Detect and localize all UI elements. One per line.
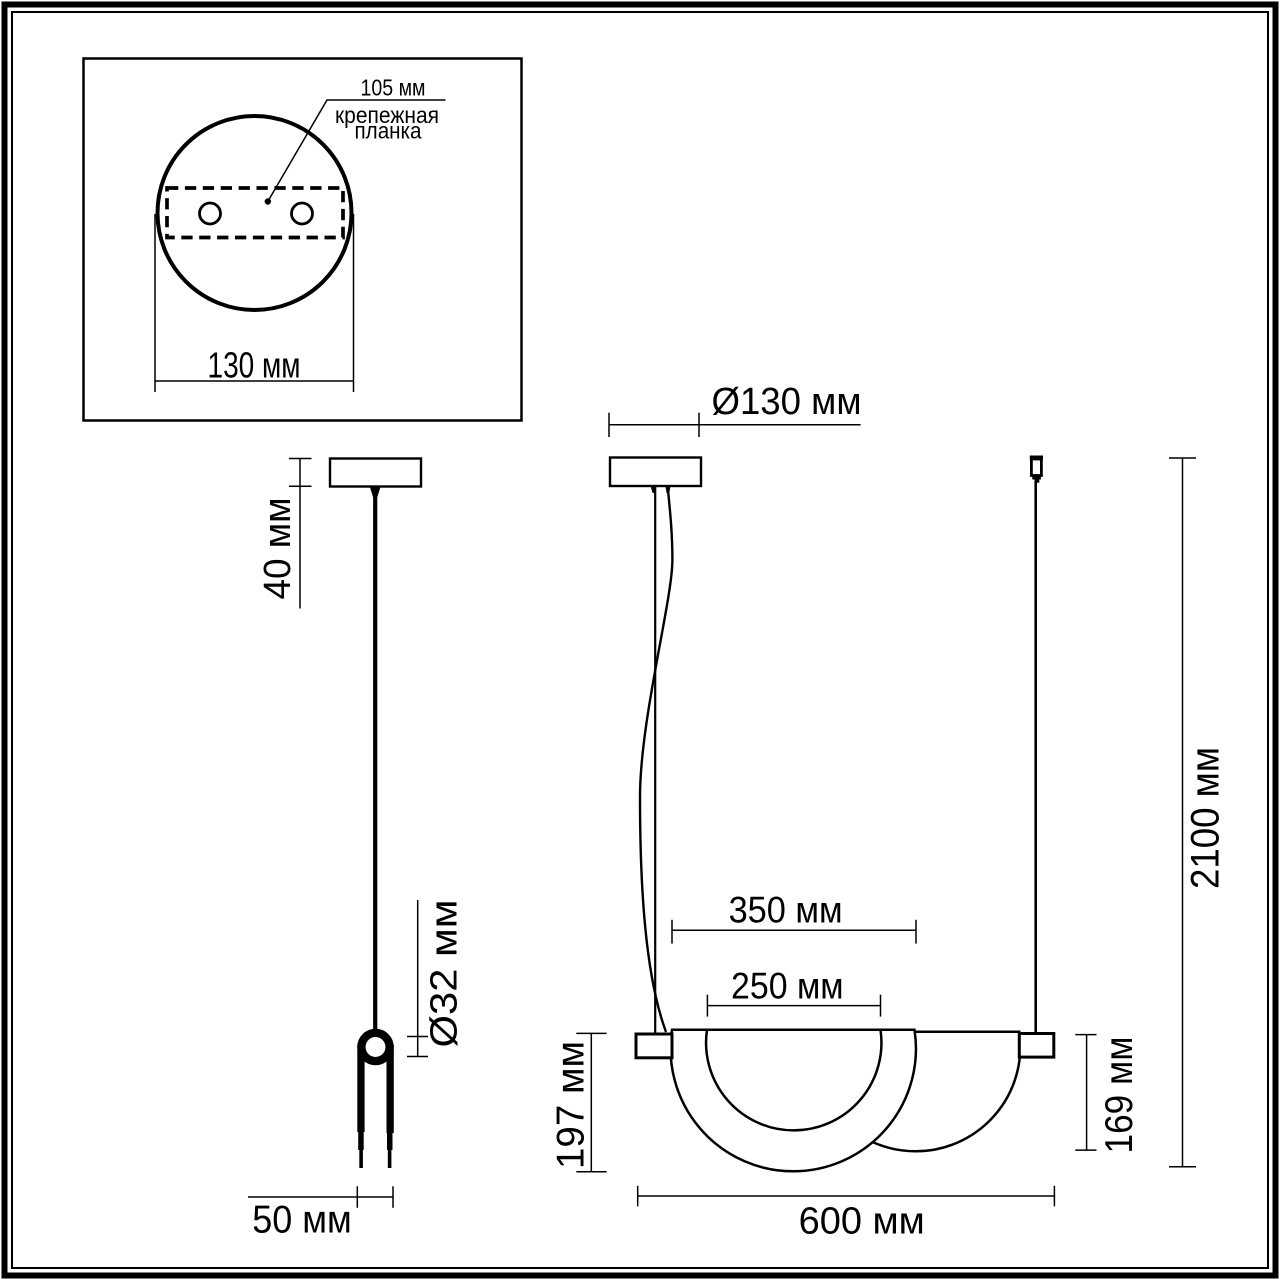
svg-text:Ø130 мм: Ø130 мм (712, 381, 862, 423)
svg-text:250 мм: 250 мм (731, 966, 844, 1007)
svg-text:600 мм: 600 мм (799, 1201, 925, 1243)
svg-text:планка: планка (355, 117, 422, 143)
svg-text:350 мм: 350 мм (729, 890, 843, 931)
svg-text:197 мм: 197 мм (550, 1041, 593, 1169)
svg-text:169 мм: 169 мм (1098, 1037, 1141, 1154)
svg-text:130 мм: 130 мм (208, 344, 301, 385)
svg-text:50 мм: 50 мм (252, 1198, 352, 1241)
svg-text:40 мм: 40 мм (257, 498, 299, 600)
svg-text:105 мм: 105 мм (361, 75, 426, 101)
svg-text:Ø32 мм: Ø32 мм (424, 900, 466, 1048)
svg-text:2100 мм: 2100 мм (1184, 747, 1228, 889)
